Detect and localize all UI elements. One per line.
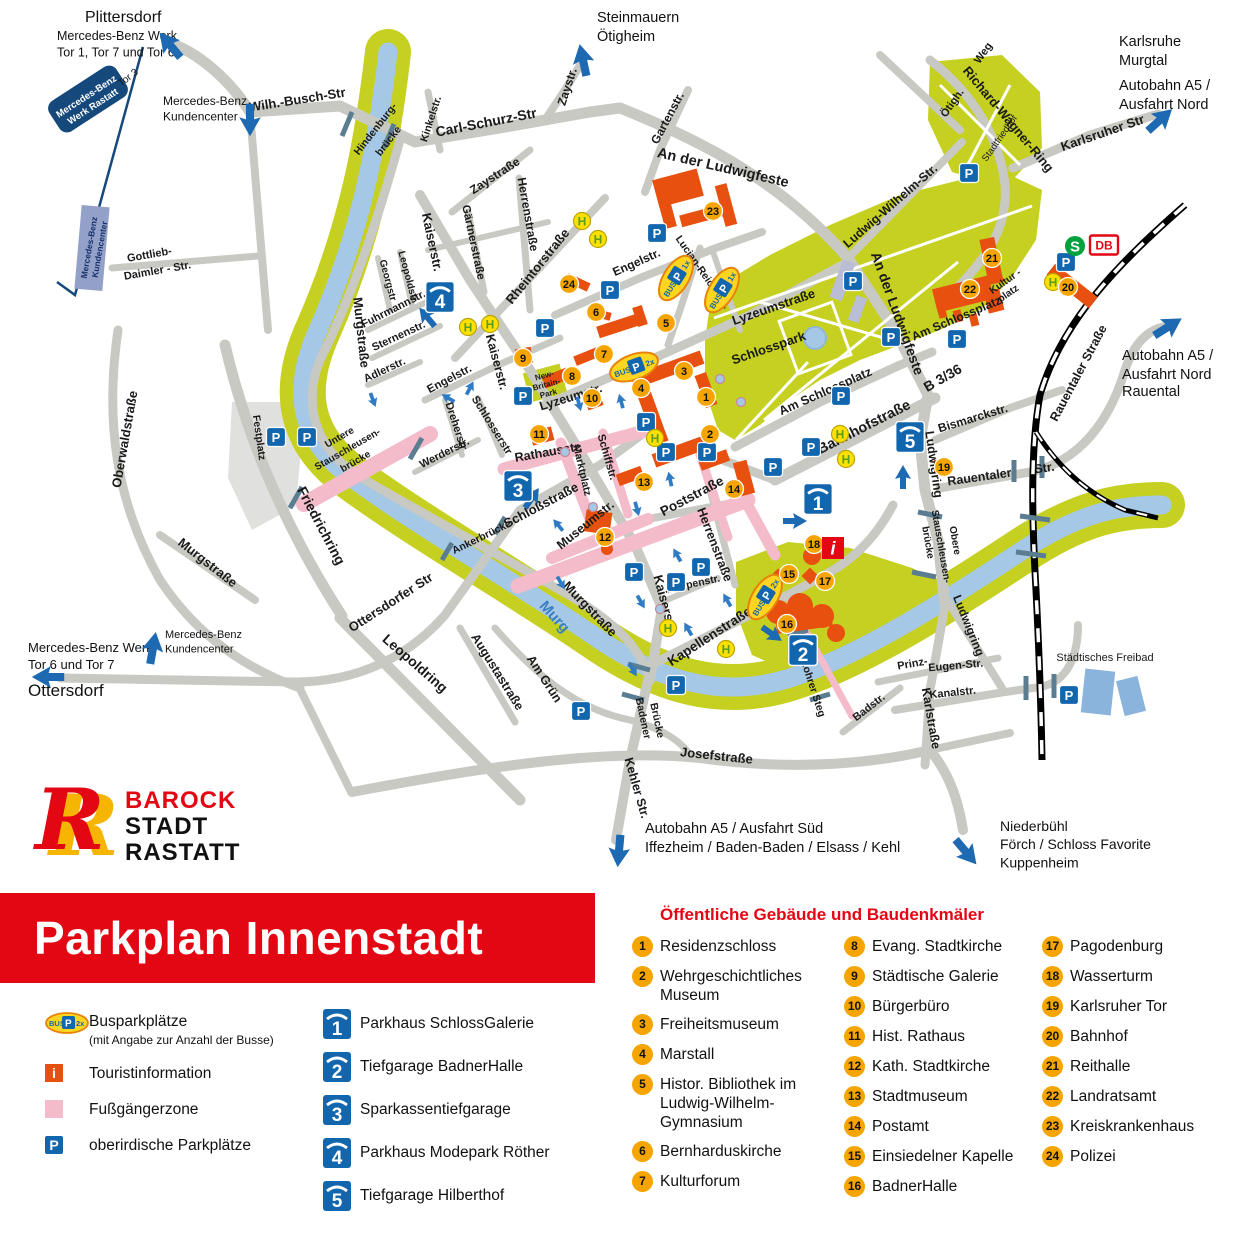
legend-garage-label: Sparkassentiefgarage	[360, 1101, 511, 1119]
destination-label-steinmauern: SteinmauernÖtigheim	[597, 10, 679, 45]
building-number-badge: 22	[1042, 1086, 1063, 1107]
legend-building-item-21: 21Reithalle	[1042, 1056, 1232, 1077]
legend-building-item-12: 12Kath. Stadtkirche	[844, 1056, 1034, 1077]
poi-marker-18: 18	[805, 535, 824, 554]
street-label: B 3/36	[921, 360, 965, 395]
svg-text:P: P	[849, 274, 858, 289]
legend-building-item-19: 19Karlsruher Tor	[1042, 996, 1232, 1017]
building-label: BadnerHalle	[872, 1176, 957, 1196]
destination-label-karlsruhe-murgtal: KarlsruheMurgtal	[1119, 34, 1181, 69]
building-label: Histor. Bibliothek im Ludwig-Wilhelm-Gym…	[660, 1074, 832, 1132]
poi-marker-22: 22	[961, 280, 980, 299]
poi-marker-19: 19	[935, 458, 954, 477]
garage-icon: 3	[322, 1094, 352, 1126]
building-label: Bahnhof	[1070, 1026, 1128, 1046]
poi-marker-5: 5	[657, 314, 676, 333]
logo-r-glyph: R R	[33, 780, 123, 870]
building-number-badge: 16	[844, 1176, 865, 1197]
parking-icon: P	[637, 413, 656, 432]
poi-marker-1: 1	[697, 388, 716, 407]
legend-building-item-2: 2Wehrgeschichtliches Museum	[632, 966, 832, 1005]
destination-label-a5-nord-rauental: Autobahn A5 /Ausfahrt Nord	[1122, 348, 1214, 383]
svg-text:P: P	[703, 445, 712, 460]
svg-text:P: P	[769, 460, 778, 475]
svg-text:4: 4	[435, 292, 446, 313]
svg-text:P: P	[672, 678, 681, 693]
buildings-legend-col3: 17Pagodenburg18Wasserturm19Karlsruher To…	[1042, 936, 1232, 1167]
building-label: Marstall	[660, 1044, 714, 1064]
garage-icon: 5	[322, 1180, 352, 1212]
svg-text:P: P	[65, 1019, 72, 1030]
legend-building-item-4: 4Marstall	[632, 1044, 832, 1065]
legend-garages: 1Parkhaus SchlossGalerie2Tiefgarage Badn…	[322, 1008, 592, 1223]
surface-parking-icon: P	[45, 1136, 63, 1154]
direction-arrow-icon	[549, 516, 566, 534]
building-label: Bürgerbüro	[872, 996, 950, 1016]
street-label: Badstr.	[851, 691, 888, 723]
legend-building-item-13: 13Stadtmuseum	[844, 1086, 1034, 1107]
fountain-dot	[737, 398, 746, 407]
svg-text:H: H	[464, 321, 473, 335]
building-number-badge: 19	[1042, 996, 1063, 1017]
building-number-badge: 11	[844, 1026, 865, 1047]
street-label: Ottersdorfer Str	[346, 569, 436, 635]
svg-text:H: H	[594, 233, 603, 247]
poi-marker-17: 17	[816, 572, 835, 591]
svg-text:P: P	[642, 415, 651, 430]
building-number-badge: 1	[632, 936, 653, 957]
svg-text:P: P	[672, 575, 681, 590]
building-label: Stadtmuseum	[872, 1086, 968, 1106]
street-label: Zaystraße	[467, 154, 522, 197]
building-label: Evang. Stadtkirche	[872, 936, 1002, 956]
building-label: Hist. Rathaus	[872, 1026, 965, 1046]
poi-marker-9: 9	[514, 349, 533, 368]
direction-arrow-icon	[664, 471, 677, 488]
building-label: Landratsamt	[1070, 1086, 1156, 1106]
svg-text:P: P	[1062, 255, 1071, 270]
legend-building-item-7: 7Kulturforum	[632, 1171, 832, 1192]
building-number-badge: 17	[1042, 936, 1063, 957]
svg-text:H: H	[1049, 276, 1058, 290]
svg-text:1: 1	[703, 392, 709, 404]
building-label: Wehrgeschichtliches Museum	[660, 966, 832, 1005]
svg-text:18: 18	[808, 539, 820, 551]
svg-text:5: 5	[905, 432, 916, 453]
building-number-badge: 18	[1042, 966, 1063, 987]
svg-text:15: 15	[783, 569, 795, 581]
bus-stop-icon: H	[647, 430, 664, 447]
garage-marker-2: 2	[789, 635, 818, 666]
street-label: Schlosserstr	[469, 394, 515, 457]
city-map: Wilh.-Busch-StrCarl-Schurz-StrHindenburg…	[0, 0, 1240, 890]
svg-text:P: P	[653, 226, 662, 241]
legend-garage-item-1: 1Parkhaus SchlossGalerie	[322, 1008, 592, 1040]
svg-text:7: 7	[601, 349, 607, 361]
svg-text:P: P	[807, 440, 816, 455]
legend-building-item-5: 5Histor. Bibliothek im Ludwig-Wilhelm-Gy…	[632, 1074, 832, 1132]
parking-icon: P	[667, 676, 686, 695]
building-number-badge: 10	[844, 996, 865, 1017]
legend-garage-label: Parkhaus SchlossGalerie	[360, 1015, 534, 1033]
poi-marker-20: 20	[1059, 278, 1078, 297]
street-label: Str.	[1033, 460, 1055, 477]
fountain-dot	[589, 503, 598, 512]
svg-text:2: 2	[707, 429, 713, 441]
svg-text:P: P	[541, 321, 550, 336]
freibad-building	[1081, 669, 1115, 716]
bus-stop-icon: H	[482, 316, 499, 333]
parking-icon: P	[601, 281, 620, 300]
poi-marker-6: 6	[587, 303, 606, 322]
destination-label-mb-werk-sued: Mercedes-Benz WerkTor 6 und Tor 7	[28, 640, 153, 672]
legend-garage-label: Parkhaus Modepark Röther	[360, 1144, 550, 1162]
freibad-building	[1116, 676, 1146, 716]
svg-text:4: 4	[332, 1148, 343, 1169]
svg-text:H: H	[842, 453, 851, 467]
legend-garage-item-4: 4Parkhaus Modepark Röther	[322, 1137, 592, 1169]
svg-text:1: 1	[813, 494, 824, 515]
buildings-legend-title: Öffentliche Gebäude und Baudenkmäler	[660, 905, 984, 925]
parking-icon: P	[698, 443, 717, 462]
svg-text:16: 16	[781, 619, 793, 631]
poi-marker-12: 12	[596, 528, 615, 547]
legend-building-item-6: 6Bernharduskirche	[632, 1141, 832, 1162]
building-number-badge: 7	[632, 1171, 653, 1192]
destination-label-a5-sued: Autobahn A5 / Ausfahrt SüdIffezheim / Ba…	[645, 821, 900, 856]
direction-arrow-icon	[607, 834, 631, 868]
parking-icon: P	[536, 319, 555, 338]
logo-line3: RASTATT	[125, 840, 240, 866]
direction-arrow-icon	[366, 391, 380, 408]
svg-text:S: S	[1070, 239, 1080, 256]
building-label: Städtische Galerie	[872, 966, 999, 986]
svg-text:5: 5	[332, 1191, 343, 1212]
svg-text:H: H	[651, 432, 660, 446]
svg-text:23: 23	[707, 206, 719, 218]
direction-arrow-icon	[783, 513, 807, 529]
destination-label-niederbuehl: NiederbühlFörch / Schloss FavoriteKuppen…	[1000, 818, 1151, 870]
legend-garage-item-5: 5Tiefgarage Hilberthof	[322, 1180, 592, 1212]
building-label: Wasserturm	[1070, 966, 1153, 986]
garage-marker-1: 1	[804, 484, 833, 515]
legend-building-item-16: 16BadnerHalle	[844, 1176, 1034, 1197]
street-label: Karlsruher Str	[1059, 111, 1147, 154]
street-label: Zaystr.	[555, 66, 580, 107]
legend-building-item-10: 10Bürgerbüro	[844, 996, 1034, 1017]
legend-touristinfo: i Touristinformation	[45, 1064, 315, 1083]
parking-icon: P	[298, 428, 317, 447]
parking-icon: P	[948, 330, 967, 349]
sbahn-icon: S	[1065, 236, 1085, 256]
building-number-badge: 6	[632, 1141, 653, 1162]
legend-garage-item-2: 2Tiefgarage BadnerHalle	[322, 1051, 592, 1083]
poi-marker-3: 3	[675, 362, 694, 381]
page-title: Parkplan Innenstadt	[0, 911, 483, 965]
poi-marker-23: 23	[704, 202, 723, 221]
building-number-badge: 3	[632, 1014, 653, 1035]
poi-marker-21: 21	[983, 249, 1002, 268]
garage-marker-3: 3	[504, 471, 533, 502]
svg-text:3: 3	[513, 481, 524, 502]
legend-building-item-9: 9Städtische Galerie	[844, 966, 1034, 987]
building-label: Freiheitsmuseum	[660, 1014, 779, 1034]
building-label: Einsiedelner Kapelle	[872, 1146, 1013, 1166]
direction-arrow-icon	[947, 833, 984, 872]
parking-icon: P	[1060, 686, 1079, 705]
direction-arrow-icon	[680, 620, 696, 638]
buildings-legend-col2: 8Evang. Stadtkirche9Städtische Galerie10…	[844, 936, 1034, 1197]
building-number-badge: 4	[632, 1044, 653, 1065]
svg-text:P: P	[272, 430, 281, 445]
svg-text:1: 1	[332, 1019, 343, 1040]
svg-text:P: P	[606, 283, 615, 298]
parking-icon: P	[648, 224, 667, 243]
logo-line1: BAROCK	[125, 788, 240, 814]
svg-text:13: 13	[638, 477, 650, 489]
svg-text:8: 8	[569, 371, 575, 383]
legend-building-item-24: 24Polizei	[1042, 1146, 1232, 1167]
svg-text:P: P	[697, 560, 706, 575]
garage-marker-5: 5	[896, 422, 925, 453]
bus-stop-icon: H	[838, 451, 855, 468]
street-label: Kaiserstr.	[419, 212, 446, 273]
parking-icon: P	[667, 573, 686, 592]
svg-text:11: 11	[533, 429, 545, 441]
poi-marker-16: 16	[778, 615, 797, 634]
bus-stop-icon: H	[832, 426, 849, 443]
building-label: Kreiskrankenhaus	[1070, 1116, 1194, 1136]
poi-marker-24: 24	[560, 275, 579, 294]
direction-arrow-icon	[633, 593, 649, 611]
svg-text:3: 3	[681, 366, 687, 378]
svg-text:P: P	[630, 565, 639, 580]
poi-marker-15: 15	[780, 565, 799, 584]
destination-label-rauental: Rauental	[1122, 384, 1180, 400]
buildings-blue	[1081, 669, 1146, 717]
parking-icon: P	[514, 387, 533, 406]
logo-line2: STADT	[125, 814, 240, 840]
building-label: Kulturforum	[660, 1171, 740, 1191]
legend-parkplaetze: P oberirdische Parkplätze	[45, 1136, 315, 1155]
svg-text:P: P	[577, 704, 586, 719]
poi-marker-11: 11	[530, 425, 549, 444]
building-number-badge: 20	[1042, 1026, 1063, 1047]
svg-text:P: P	[837, 389, 846, 404]
destination-label-plittersdorf: Plittersdorf	[85, 9, 162, 26]
parking-icon: P	[572, 702, 591, 721]
parking-icon: P	[882, 328, 901, 347]
legend-building-item-22: 22Landratsamt	[1042, 1086, 1232, 1107]
parking-icon: P	[692, 558, 711, 577]
legend-building-item-8: 8Evang. Stadtkirche	[844, 936, 1034, 957]
legend-busparkplaetze: BUS P 2x Busparkplätze (mit Angabe zur A…	[45, 1012, 315, 1047]
destination-label-ottersdorf: Ottersdorf	[28, 681, 104, 700]
building-number-badge: 8	[844, 936, 865, 957]
park-pond	[804, 327, 826, 349]
garage-marker-4: 4	[426, 282, 455, 313]
legend-garage-label: Tiefgarage BadnerHalle	[360, 1058, 523, 1076]
legend-building-item-15: 15Einsiedelner Kapelle	[844, 1146, 1034, 1167]
building-number-badge: 9	[844, 966, 865, 987]
direction-arrow-icon	[614, 393, 627, 410]
svg-text:21: 21	[986, 253, 998, 265]
bus-stop-icon: H	[574, 213, 591, 230]
building-number-badge: 5	[632, 1074, 653, 1095]
svg-text:22: 22	[964, 284, 976, 296]
legend-building-item-14: 14Postamt	[844, 1116, 1034, 1137]
building-number-badge: 2	[632, 966, 653, 987]
svg-text:P: P	[662, 445, 671, 460]
poi-marker-7: 7	[595, 345, 614, 364]
street-label: Rauentaler Straße	[1047, 323, 1110, 424]
parking-icon: P	[844, 272, 863, 291]
pedestrian-zone-icon	[45, 1100, 63, 1118]
garage-icon: 1	[322, 1008, 352, 1040]
direction-arrow-icon	[669, 546, 685, 564]
street-label: Leopoldstr	[395, 250, 419, 303]
svg-text:H: H	[722, 643, 731, 657]
building-number-badge: 15	[844, 1146, 865, 1167]
svg-text:P: P	[953, 332, 962, 347]
street-label: Murgstraße	[175, 535, 240, 590]
building-number-badge: 23	[1042, 1116, 1063, 1137]
svg-text:DB: DB	[1095, 239, 1113, 253]
building-number-badge: 24	[1042, 1146, 1063, 1167]
destination-label-mb-werk-nord: Mercedes-Benz WerkTor 1, Tor 7 und Tor 6	[57, 29, 178, 59]
svg-text:14: 14	[728, 484, 741, 496]
street-label: Kapellenstraße	[665, 603, 755, 669]
svg-text:P: P	[303, 430, 312, 445]
map-canvas: Wilh.-Busch-StrCarl-Schurz-StrHindenburg…	[0, 0, 1240, 890]
poi-marker-2: 2	[701, 425, 720, 444]
parking-icon: P	[832, 387, 851, 406]
parking-icon: P	[960, 164, 979, 183]
buildings-legend-col1: 1Residenzschloss2Wehrgeschichtliches Mus…	[632, 936, 832, 1192]
tourist-info-icon: i	[822, 537, 844, 559]
parkplan-poster: { "title_bar": {"text": "Parkplan Innens…	[0, 0, 1240, 1240]
building-label: Postamt	[872, 1116, 929, 1136]
legend-symbols: BUS P 2x Busparkplätze (mit Angabe zur A…	[45, 1012, 315, 1172]
building-number-badge: 12	[844, 1056, 865, 1077]
svg-text:6: 6	[593, 307, 599, 319]
bus-stop-icon: H	[660, 620, 677, 637]
fountain-dot	[561, 448, 570, 457]
svg-text:P: P	[1065, 688, 1074, 703]
legend-building-item-1: 1Residenzschloss	[632, 936, 832, 957]
building-label: Karlsruher Tor	[1070, 996, 1167, 1016]
legend-building-item-3: 3Freiheitsmuseum	[632, 1014, 832, 1035]
svg-text:5: 5	[663, 318, 669, 330]
destination-label-a5-nord-top: Autobahn A5 /Ausfahrt Nord	[1119, 78, 1211, 113]
direction-arrow-icon	[895, 465, 911, 489]
tourist-info-icon: i	[45, 1064, 63, 1082]
destination-label-mb-kundencenter-sued: Mercedes-BenzKundencenter	[165, 629, 242, 655]
destination-label-mb-kundencenter-top: Mercedes-BenzKundencenter	[163, 94, 247, 124]
garage-icon: 4	[322, 1137, 352, 1169]
legend-building-item-20: 20Bahnhof	[1042, 1026, 1232, 1047]
building-label: Residenzschloss	[660, 936, 776, 956]
building-number-badge: 13	[844, 1086, 865, 1107]
direction-arrow-icon	[140, 630, 167, 666]
city-logo: R R BAROCK STADT RASTATT	[33, 786, 333, 876]
direction-arrow-icon	[719, 591, 735, 609]
title-bar: Parkplan Innenstadt	[0, 893, 595, 983]
svg-text:P: P	[887, 330, 896, 345]
fountain-dot	[716, 375, 725, 384]
svg-text:10: 10	[586, 393, 598, 405]
svg-text:2x: 2x	[76, 1019, 85, 1028]
street-label: Georgstr	[377, 259, 399, 303]
legend-bus-sublabel: (mit Angabe zur Anzahl der Busse)	[89, 1033, 274, 1047]
svg-text:4: 4	[638, 383, 645, 395]
poi-marker-13: 13	[635, 473, 654, 492]
street-label: Städtisches Freibad	[1056, 652, 1153, 664]
bus-stop-icon: H	[460, 319, 477, 336]
poi-marker-14: 14	[725, 480, 744, 499]
poi-marker-10: 10	[583, 389, 602, 408]
building-label: Polizei	[1070, 1146, 1116, 1166]
legend-garage-item-3: 3Sparkassentiefgarage	[322, 1094, 592, 1126]
building-label: Pagodenburg	[1070, 936, 1163, 956]
svg-text:H: H	[486, 318, 495, 332]
svg-text:20: 20	[1062, 282, 1074, 294]
legend-fussgaengerzone: Fußgängerzone	[45, 1100, 315, 1119]
svg-text:19: 19	[938, 462, 950, 474]
svg-text:24: 24	[563, 279, 576, 291]
svg-text:12: 12	[599, 532, 611, 544]
svg-text:9: 9	[520, 353, 526, 365]
street-label: Augustastraße	[468, 631, 526, 713]
building-label: Bernharduskirche	[660, 1141, 781, 1161]
svg-text:17: 17	[819, 576, 831, 588]
legend-building-item-17: 17Pagodenburg	[1042, 936, 1232, 957]
svg-text:P: P	[519, 389, 528, 404]
street-label: Bismarckstr.	[936, 401, 1009, 435]
parking-icon: P	[802, 438, 821, 457]
street-label: Am Grün	[524, 653, 565, 705]
parking-icon: P	[625, 563, 644, 582]
legend-garage-label: Tiefgarage Hilberthof	[360, 1187, 504, 1205]
bus-stop-icon: H	[590, 231, 607, 248]
legend-building-item-11: 11Hist. Rathaus	[844, 1026, 1034, 1047]
svg-text:H: H	[836, 428, 845, 442]
fountain-dot	[656, 605, 665, 614]
building-label: Reithalle	[1070, 1056, 1130, 1076]
svg-text:H: H	[578, 215, 587, 229]
bus-parking-icon: BUS P 2x	[45, 1012, 89, 1034]
building-number-badge: 14	[844, 1116, 865, 1137]
parking-icon: P	[267, 428, 286, 447]
svg-text:3: 3	[332, 1105, 343, 1126]
building-label: Kath. Stadtkirche	[872, 1056, 990, 1076]
parking-icon: P	[764, 458, 783, 477]
poi-marker-4: 4	[632, 379, 651, 398]
svg-text:2: 2	[332, 1062, 343, 1083]
garage-icon: 2	[322, 1051, 352, 1083]
legend-building-item-23: 23Kreiskrankenhaus	[1042, 1116, 1232, 1137]
legend-building-item-18: 18Wasserturm	[1042, 966, 1232, 987]
street-label: Obere	[947, 525, 963, 556]
legend-bus-label: Busparkplätze	[89, 1012, 274, 1031]
svg-text:H: H	[664, 622, 673, 636]
svg-text:P: P	[965, 166, 974, 181]
building-number-badge: 21	[1042, 1056, 1063, 1077]
poi-marker-8: 8	[563, 367, 582, 386]
svg-text:2: 2	[798, 645, 809, 666]
bus-stop-icon: H	[718, 641, 735, 658]
db-icon: DB	[1090, 236, 1118, 255]
